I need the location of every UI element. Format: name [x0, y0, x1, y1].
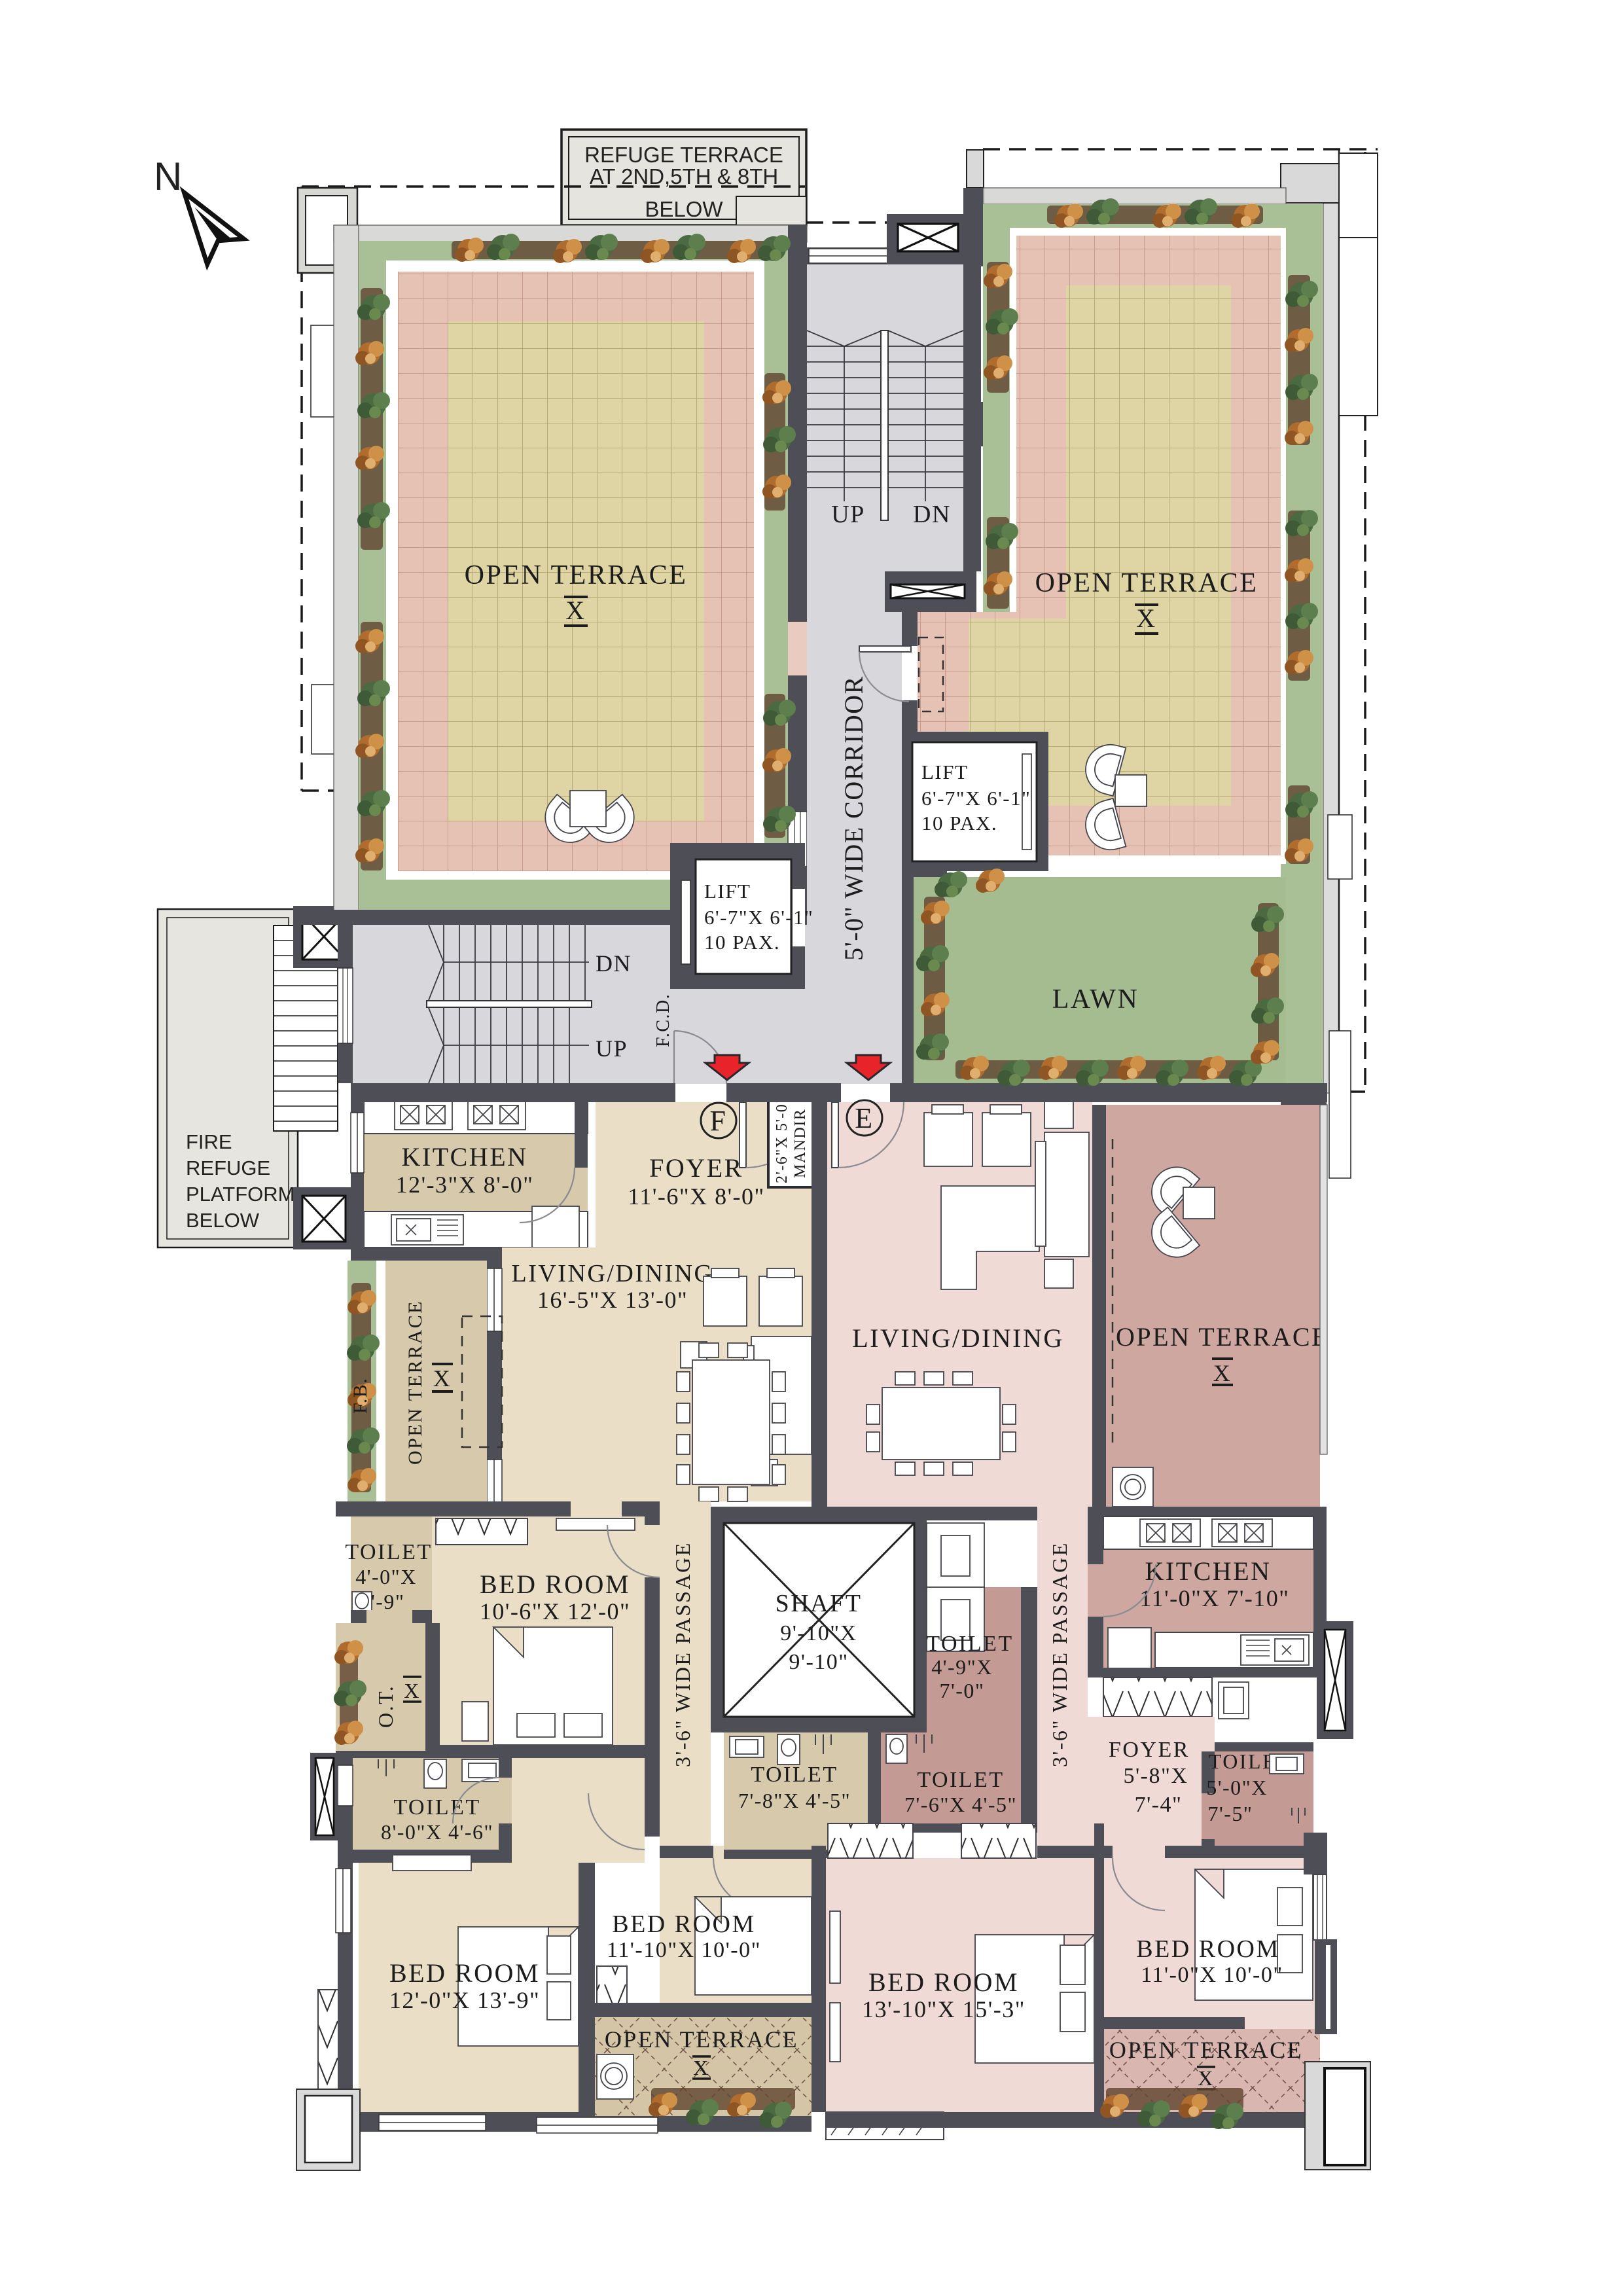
svg-text:7'-6"X 4'-5": 7'-6"X 4'-5": [904, 1793, 1017, 1816]
svg-text:UP: UP: [831, 501, 865, 528]
svg-text:BED ROOM: BED ROOM: [389, 1958, 540, 1988]
svg-text:DN: DN: [913, 501, 951, 528]
svg-text:OPEN TERRACE: OPEN TERRACE: [404, 1300, 426, 1465]
svg-text:3'-6" WIDE PASSAGE: 3'-6" WIDE PASSAGE: [1048, 1541, 1071, 1767]
svg-text:TOILET: TOILET: [751, 1763, 838, 1787]
svg-text:KITCHEN: KITCHEN: [1145, 1556, 1271, 1586]
svg-text:REFUGE: REFUGE: [186, 1157, 270, 1179]
svg-text:AT 2ND,5TH & 8TH: AT 2ND,5TH & 8TH: [590, 164, 779, 188]
svg-text:KITCHEN: KITCHEN: [401, 1142, 527, 1172]
svg-text:MANDIR: MANDIR: [792, 1109, 809, 1178]
svg-text:LIVING/DINING: LIVING/DINING: [852, 1323, 1064, 1353]
svg-text:F: F: [710, 1105, 728, 1137]
svg-text:O.T.: O.T.: [374, 1685, 397, 1728]
svg-text:X: X: [1213, 1360, 1232, 1386]
svg-text:BED ROOM: BED ROOM: [1136, 1935, 1280, 1963]
svg-text:TOILET: TOILET: [345, 1540, 432, 1564]
svg-text:X: X: [1198, 2066, 1215, 2090]
svg-text:REFUGE TERRACE: REFUGE TERRACE: [584, 143, 783, 167]
svg-text:UP: UP: [596, 1035, 628, 1062]
svg-text:11'-0"X 10'-0": 11'-0"X 10'-0": [1141, 1963, 1283, 1987]
svg-text:N: N: [154, 154, 182, 198]
svg-text:BED ROOM: BED ROOM: [612, 1910, 756, 1938]
svg-text:LIVING/DINING: LIVING/DINING: [512, 1260, 714, 1287]
svg-text:7'-8"X 4'-5": 7'-8"X 4'-5": [738, 1789, 851, 1812]
svg-text:2'-6"X 5'-0": 2'-6"X 5'-0": [774, 1096, 791, 1183]
svg-text:BED ROOM: BED ROOM: [868, 1967, 1019, 1997]
svg-text:BELOW: BELOW: [186, 1209, 260, 1232]
svg-text:BELOW: BELOW: [645, 197, 723, 221]
svg-text:OPEN TERRACE: OPEN TERRACE: [1116, 1322, 1329, 1352]
svg-text:LAWN: LAWN: [1052, 984, 1139, 1014]
svg-text:E: E: [855, 1102, 874, 1134]
svg-text:X: X: [565, 596, 586, 625]
svg-text:FOYER: FOYER: [1109, 1738, 1190, 1762]
svg-text:16'-5"X 13'-0": 16'-5"X 13'-0": [537, 1287, 688, 1313]
svg-text:X: X: [1136, 603, 1156, 633]
svg-text:13'-10"X 15'-3": 13'-10"X 15'-3": [862, 1996, 1026, 2022]
svg-text:4'-9"X: 4'-9"X: [931, 1655, 993, 1679]
svg-text:3'-6" WIDE PASSAGE: 3'-6" WIDE PASSAGE: [671, 1541, 694, 1767]
svg-text:7'-0": 7'-0": [940, 1679, 985, 1702]
svg-text:OPEN TERRACE: OPEN TERRACE: [605, 2026, 798, 2053]
svg-text:4'-0"X: 4'-0"X: [355, 1565, 417, 1588]
svg-text:5'-8"X: 5'-8"X: [1124, 1764, 1188, 1788]
svg-text:9'-10": 9'-10": [789, 1650, 848, 1674]
svg-text:12'-0"X 13'-9": 12'-0"X 13'-9": [389, 1987, 540, 2013]
svg-text:X: X: [404, 1679, 421, 1702]
svg-text:7'-5": 7'-5": [1208, 1802, 1253, 1825]
svg-text:SHAFT: SHAFT: [776, 1590, 863, 1617]
svg-text:5'-0"X: 5'-0"X: [1206, 1776, 1268, 1799]
svg-text:LIFT: LIFT: [704, 880, 751, 903]
svg-text:OPEN TERRACE: OPEN TERRACE: [1035, 568, 1258, 598]
svg-text:F.C.D.: F.C.D.: [653, 994, 673, 1047]
svg-text:5'-0" WIDE CORRIDOR: 5'-0" WIDE CORRIDOR: [839, 675, 868, 961]
svg-text:X: X: [693, 2056, 710, 2079]
svg-text:10 PAX.: 10 PAX.: [921, 812, 997, 834]
svg-text:FIRE: FIRE: [186, 1130, 232, 1153]
svg-text:8'-0"X 4'-6": 8'-0"X 4'-6": [381, 1820, 493, 1844]
svg-text:11'-6"X 8'-0": 11'-6"X 8'-0": [628, 1183, 765, 1210]
svg-text:FOYER: FOYER: [649, 1153, 743, 1183]
svg-text:OPEN TERRACE: OPEN TERRACE: [1109, 2037, 1303, 2063]
svg-text:BED ROOM: BED ROOM: [480, 1570, 630, 1599]
svg-text:12'-3"X 8'-0": 12'-3"X 8'-0": [396, 1172, 534, 1198]
svg-text:11'-10"X 10'-0": 11'-10"X 10'-0": [607, 1938, 761, 1962]
svg-text:DN: DN: [596, 950, 632, 977]
svg-text:X: X: [433, 1365, 452, 1391]
svg-text:TOILET: TOILET: [393, 1795, 480, 1820]
svg-text:10 PAX.: 10 PAX.: [704, 931, 780, 954]
svg-text:11'-0"X 7'-10": 11'-0"X 7'-10": [1139, 1585, 1289, 1611]
svg-text:9'-10"X: 9'-10"X: [780, 1621, 857, 1645]
svg-text:6'-7"X 6'-1": 6'-7"X 6'-1": [921, 787, 1031, 810]
svg-text:LIFT: LIFT: [921, 761, 968, 783]
svg-text:F.B.: F.B.: [349, 1378, 371, 1414]
svg-text:10'-6"X 12'-0": 10'-6"X 12'-0": [480, 1598, 630, 1624]
svg-text:TOILET: TOILET: [926, 1632, 1013, 1656]
svg-text:TOILET: TOILET: [917, 1768, 1004, 1792]
svg-text:PLATFORM: PLATFORM: [186, 1183, 295, 1206]
svg-text:OPEN TERRACE: OPEN TERRACE: [465, 560, 688, 590]
svg-text:7'-4": 7'-4": [1135, 1793, 1183, 1817]
svg-text:6'-7"X 6'-1": 6'-7"X 6'-1": [704, 906, 813, 929]
